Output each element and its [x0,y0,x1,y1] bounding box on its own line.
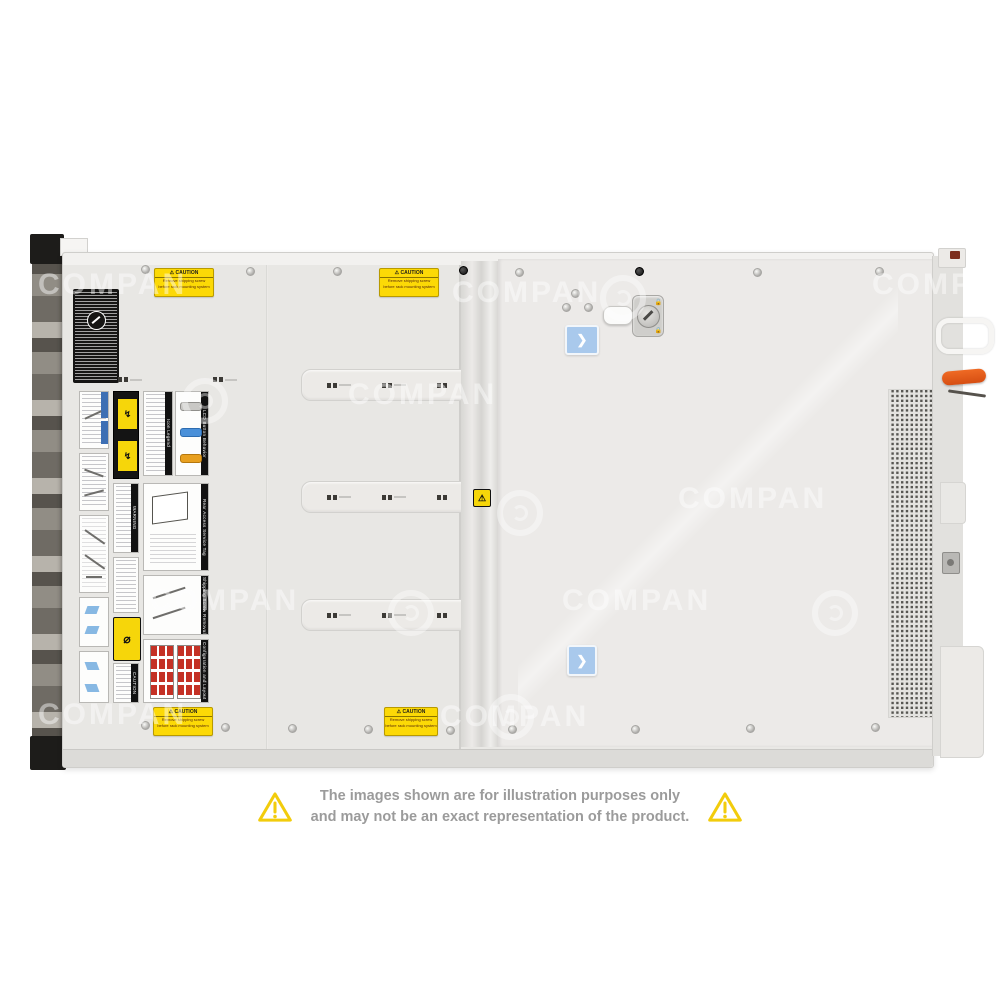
disclaimer-text: The images shown are for illustration pu… [311,786,690,828]
caution-title: ⚠ CAUTION [154,708,212,717]
right-top-cover: 🔓 🔒 ❯ ❯ [498,259,933,747]
vent-grid [888,389,934,718]
rail-screw [459,266,468,275]
rail-screw [635,267,644,276]
sticker-pointer-icon [406,735,416,736]
lock-icon: 🔒 [655,328,662,334]
lcd-bar-gray [180,402,202,411]
rail-screw [753,268,762,277]
lift-instruction-label [79,651,109,703]
cover-recess-handle [301,481,473,513]
latch-screw [571,289,580,298]
rail-screw [515,268,524,277]
caution-symbol-sticker: ⌀ [113,617,141,661]
rail-screw [141,721,150,730]
disclaimer-line2: and may not be an exact representation o… [311,807,690,828]
shipping-screw-label: Shipping Screw Removal [143,575,209,635]
label-header [101,392,108,418]
regulatory-label [73,289,119,383]
caution-line2: before rack mounting system [385,723,437,729]
lcd-bar-orange [180,454,202,463]
hand-pinch-icon: ↯ [117,398,138,430]
rail-instruction-label [79,391,109,449]
lift-instruction-label [79,597,109,647]
caution-line1: Remove shipping screw [154,717,212,723]
cover-keylock: 🔓 🔒 [632,295,664,337]
caution-sticker-bottom-left: ⚠ CAUTION Remove shipping screw before r… [153,707,213,736]
server-rear-edge [32,244,64,758]
cover-recess-handle [301,369,473,401]
rail-screw [288,724,297,733]
certification-mark-icon [87,311,106,330]
rail-screw [631,725,640,734]
metal-clip [942,552,960,574]
shipping-screw-header: Shipping Screw Removal [201,576,208,634]
cover-recess-handle [301,599,473,631]
product-photo-canvas: ⚠ CAUTION Remove shipping screw before r… [0,0,1000,1000]
drive-bay-grid [177,645,201,699]
rail-screw [746,724,755,733]
hand-pinch-icon: ↯ [117,440,138,472]
lcd-bar-blue [180,428,202,437]
caution-line2: before rack mounting system [154,723,212,729]
caution-line2: before rack mounting system [380,284,438,290]
rail-screw [446,726,455,735]
rear-access-header: Rear Access Service Tag [201,484,208,570]
caution-sticker-top-left: ⚠ CAUTION Remove shipping screw before r… [154,268,214,297]
rail-screw [508,725,517,734]
rail-instruction-label [79,453,109,511]
rail-screw [364,725,373,734]
chevron-right-icon: ❯ [577,653,588,669]
sticker-pointer-icon [179,268,189,269]
drive-bay-grid [150,645,174,699]
caution-line1: Remove shipping screw [385,717,437,723]
caution-sticker-bottom-right: ⚠ CAUTION Remove shipping screw before r… [384,707,438,736]
latch-direction-sticker: ❯ [567,645,597,676]
front-tab-red-tip [950,251,960,259]
left-top-cover: ⚠ CAUTION Remove shipping screw before r… [63,265,461,749]
rail-screw [875,267,884,276]
vent-marks [118,377,142,382]
configuration-layout-label: Configuration and Layout [143,639,209,703]
rail-screw [871,723,880,732]
cover-latch-slider [603,306,633,325]
chassis-bottom-rail [63,749,933,767]
latch-screw [584,303,593,312]
regulatory-label-text-lines [75,292,117,380]
front-bezel-notch [940,482,966,524]
rear-rack-ear-bottom [30,736,66,770]
cover-divider-panel: ⚠ [461,261,498,747]
server-front-edge [932,246,986,766]
caution-header: CAUTION [131,664,138,702]
server-chassis: ⚠ CAUTION Remove shipping screw before r… [62,252,934,768]
pinch-warning-label: ↯ ↯ [113,391,139,479]
lcd-button-label: LCD Button Behavior [175,391,209,476]
rear-rack-ear-top [30,234,64,264]
caution-line1: Remove shipping screw [380,278,438,284]
rail-screw [141,265,150,274]
caution-text-label: CAUTION [113,663,139,703]
front-bezel-corner [940,646,984,758]
caution-title: ⚠ CAUTION [155,269,213,278]
sticker-pointer-icon [178,735,188,736]
disclaimer-bar: The images shown are for illustration pu… [0,786,1000,828]
vent-marks [213,377,237,382]
warning-triangle-icon [707,791,743,824]
label-header [101,421,108,443]
latch-screw [562,303,571,312]
caution-line2: before rack mounting system [155,284,213,290]
warning-triangle-sticker: ⚠ [473,489,491,507]
orange-release-lever [941,368,986,386]
server-top-view: ⚠ CAUTION Remove shipping screw before r… [30,228,988,773]
caution-title: ⚠ CAUTION [385,708,437,717]
warning-text-label [113,557,139,613]
caution-title: ⚠ CAUTION [380,269,438,278]
icon-legend-header: Icon Legend [165,392,172,475]
service-label-cluster: ↯ ↯ WARNING ⌀ CAUTION [79,391,209,703]
rear-access-label: Rear Access Service Tag [143,483,209,571]
lcd-button-header: LCD Button Behavior [201,392,208,475]
cover-seam [266,265,268,749]
rail-screw [333,267,342,276]
pull-ring-handle [936,318,994,354]
rail-screw [246,267,255,276]
caution-line1: Remove shipping screw [155,278,213,284]
configuration-layout-header: Configuration and Layout [201,640,208,702]
chevron-right-icon: ❯ [577,332,588,348]
latch-direction-sticker: ❯ [565,325,599,355]
rail-screw [221,723,230,732]
server-diagram [152,491,188,524]
warning-text-label: WARNING [113,483,139,553]
rack-diagram-label [79,515,109,593]
warning-triangle-icon [257,791,293,824]
unlock-icon: 🔓 [655,300,662,306]
disclaimer-line1: The images shown are for illustration pu… [311,786,690,807]
caution-sticker-top-right: ⚠ CAUTION Remove shipping screw before r… [379,268,439,297]
sticker-pointer-icon [404,268,414,269]
icon-legend-label: Icon Legend [143,391,173,476]
warning-header: WARNING [131,484,138,552]
